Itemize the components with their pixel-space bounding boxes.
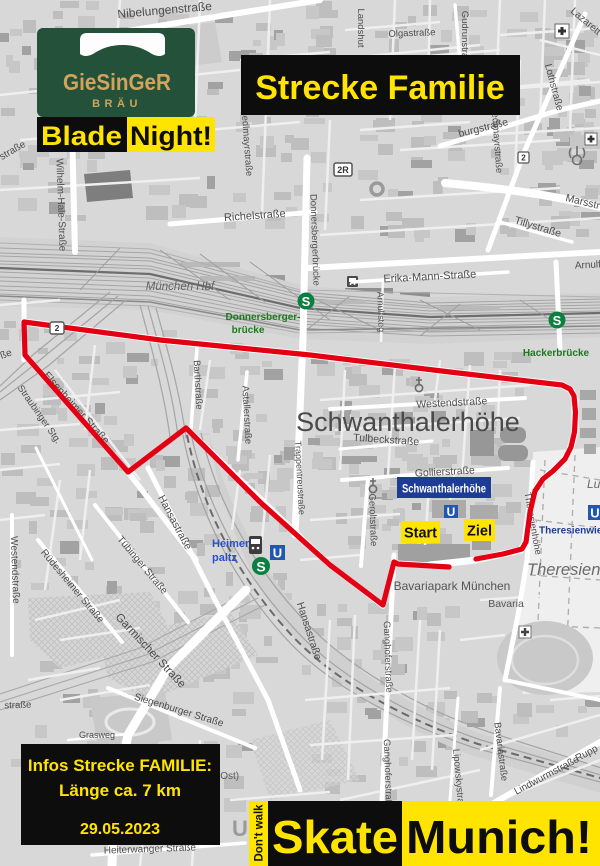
svg-text:U: U: [447, 505, 456, 519]
svg-text:S: S: [256, 559, 265, 575]
svg-text:2: 2: [521, 154, 526, 163]
svg-text:Schwanthalerhöhe: Schwanthalerhöhe: [296, 407, 520, 437]
svg-text:BRÄU: BRÄU: [92, 97, 142, 110]
svg-text:Theresienwiese: Theresienwiese: [527, 561, 600, 579]
svg-text:Schwanthalerhöhe: Schwanthalerhöhe: [402, 484, 486, 496]
svg-text:Grasweg: Grasweg: [79, 730, 115, 740]
svg-text:Landshut: Landshut: [355, 8, 366, 47]
svg-text:Strecke Familie: Strecke Familie: [255, 69, 504, 107]
svg-text:brücke: brücke: [232, 325, 265, 336]
svg-text:Bavaria: Bavaria: [488, 598, 524, 610]
svg-text:Ziel: Ziel: [467, 524, 492, 540]
svg-text:Hackerbrücke: Hackerbrücke: [523, 348, 590, 359]
svg-text:München Hbf: München Hbf: [146, 281, 216, 293]
svg-text:2R: 2R: [337, 165, 349, 175]
svg-text:straße: straße: [4, 700, 31, 712]
svg-text:Olgastraße: Olgastraße: [388, 27, 435, 40]
svg-text:Arnulfsteg: Arnulfsteg: [375, 291, 386, 332]
svg-text:Bavariapark München: Bavariapark München: [394, 579, 511, 593]
svg-text:Lu: Lu: [587, 477, 600, 491]
svg-text:paltz: paltz: [212, 552, 238, 564]
svg-text:Donnersberger-: Donnersberger-: [225, 312, 300, 323]
svg-text:U: U: [232, 816, 248, 841]
svg-text:Start: Start: [404, 526, 437, 542]
svg-text:U: U: [273, 546, 282, 561]
svg-text:GieSinGeR: GieSinGeR: [63, 69, 171, 95]
svg-text:Munich!: Munich!: [406, 811, 592, 863]
svg-text:Blade: Blade: [41, 121, 122, 151]
svg-text:Länge ca. 7 km: Länge ca. 7 km: [59, 781, 181, 800]
svg-text:2: 2: [55, 323, 60, 333]
svg-text:Night!: Night!: [130, 121, 212, 151]
svg-text:Infos Strecke FAMILIE:: Infos Strecke FAMILIE:: [28, 756, 212, 775]
svg-text:Arnulf: Arnulf: [575, 259, 600, 271]
svg-text:29.05.2023: 29.05.2023: [80, 821, 160, 838]
svg-text:S: S: [553, 313, 562, 328]
svg-text:S: S: [302, 294, 311, 309]
svg-text:Don't walk: Don't walk: [254, 804, 266, 862]
svg-text:(Ost): (Ost): [217, 771, 239, 782]
svg-text:Theresienwiese: Theresienwiese: [539, 526, 600, 537]
svg-text:Geroltstraße: Geroltstraße: [366, 493, 379, 546]
svg-text:U: U: [590, 506, 599, 521]
svg-text:Skate: Skate: [272, 811, 398, 863]
